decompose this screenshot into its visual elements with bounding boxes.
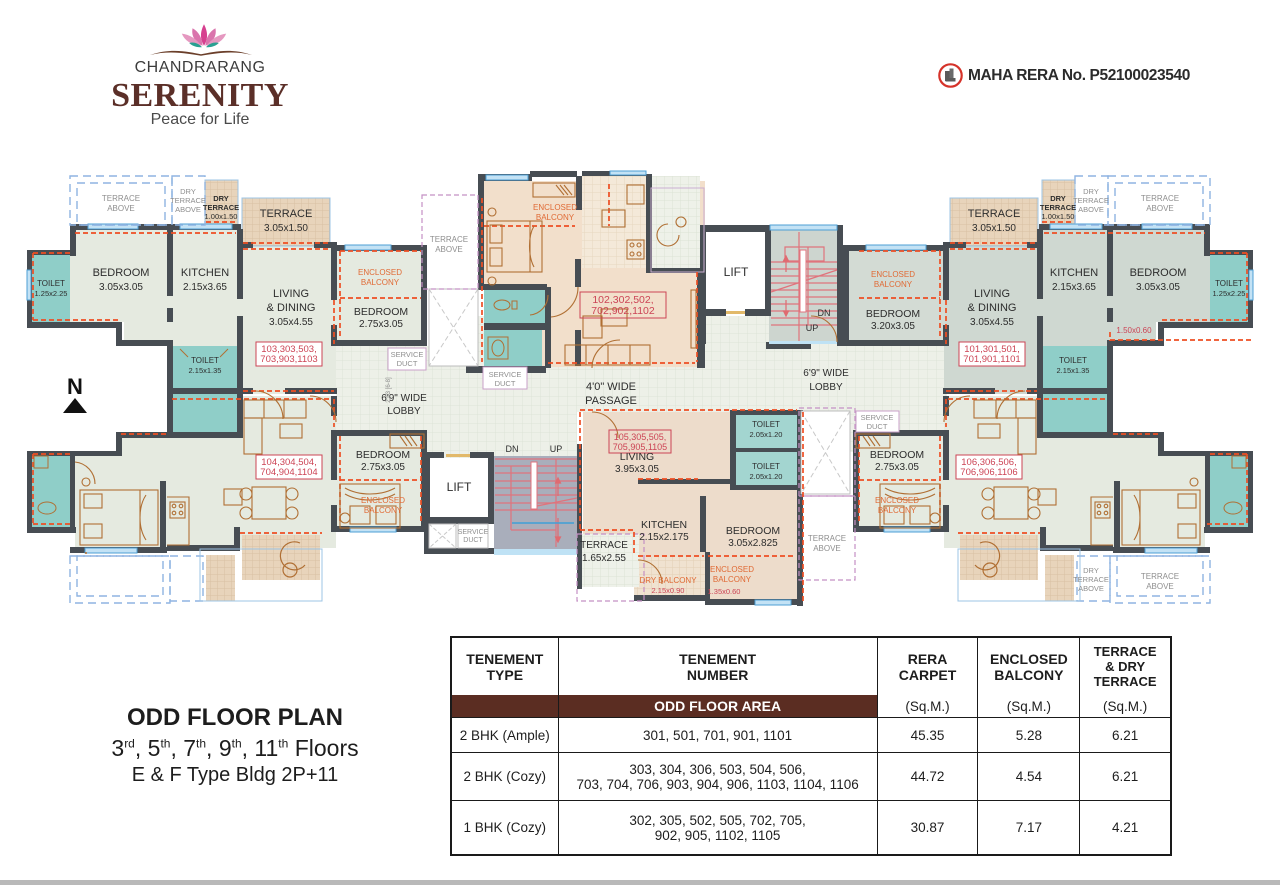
svg-text:LOBBY: LOBBY — [387, 406, 421, 417]
svg-text:TERRACE: TERRACE — [102, 194, 140, 203]
svg-text:701,901,1101: 701,901,1101 — [963, 354, 1020, 365]
svg-text:BEDROOM: BEDROOM — [866, 308, 920, 320]
svg-text:6'9" WIDE: 6'9" WIDE — [803, 368, 849, 379]
svg-text:2.15x1.35: 2.15x1.35 — [1057, 366, 1090, 375]
svg-text:TERRACE: TERRACE — [580, 540, 628, 551]
svg-text:KITCHEN: KITCHEN — [641, 519, 687, 531]
svg-text:DRY: DRY — [1083, 187, 1099, 196]
svg-text:& DINING: & DINING — [968, 302, 1017, 314]
svg-text:BALCONY: BALCONY — [874, 280, 913, 289]
svg-text:2.75x3.05: 2.75x3.05 — [361, 462, 405, 473]
svg-text:TOILET: TOILET — [752, 420, 780, 429]
svg-text:LIFT: LIFT — [447, 480, 472, 494]
svg-text:TERRACE: TERRACE — [430, 235, 468, 244]
svg-text:BEDROOM: BEDROOM — [1130, 267, 1187, 279]
svg-text:UP: UP — [550, 444, 563, 454]
svg-text:TOILET: TOILET — [1059, 356, 1087, 365]
svg-text:BALCONY: BALCONY — [878, 506, 917, 515]
svg-text:DN: DN — [818, 308, 831, 318]
svg-text:2.15x1.35: 2.15x1.35 — [189, 366, 222, 375]
svg-text:3.05x1.50: 3.05x1.50 — [972, 223, 1016, 234]
svg-text:3.05x2.825: 3.05x2.825 — [728, 538, 778, 549]
svg-text:TOILET: TOILET — [752, 462, 780, 471]
svg-text:TERRACE: TERRACE — [1073, 575, 1109, 584]
svg-text:DUCT: DUCT — [463, 537, 483, 544]
svg-text:TOILET: TOILET — [191, 356, 219, 365]
svg-text:TERRACE: TERRACE — [968, 208, 1021, 220]
svg-text:2.15x3.65: 2.15x3.65 — [1052, 282, 1096, 293]
svg-text:ENCLOSED: ENCLOSED — [361, 496, 405, 505]
svg-text:DUCT: DUCT — [867, 422, 888, 431]
svg-text:703,903,1103: 703,903,1103 — [260, 354, 317, 365]
svg-text:105,305,505,: 105,305,505, — [614, 432, 667, 442]
svg-text:2.03 [6-8]: 2.03 [6-8] — [386, 377, 392, 403]
svg-text:SERVICE: SERVICE — [391, 350, 424, 359]
svg-text:TOILET: TOILET — [37, 279, 65, 288]
svg-text:BALCONY: BALCONY — [536, 213, 575, 222]
svg-text:1.25x2.25: 1.25x2.25 — [35, 289, 68, 298]
svg-text:1.00x1.50: 1.00x1.50 — [1042, 212, 1075, 221]
svg-text:BEDROOM: BEDROOM — [93, 267, 150, 279]
svg-text:TERRACE: TERRACE — [808, 534, 846, 543]
svg-text:1.35x0.60: 1.35x0.60 — [708, 587, 741, 596]
svg-text:2.15x3.65: 2.15x3.65 — [183, 282, 227, 293]
svg-text:SERVICE: SERVICE — [861, 413, 894, 422]
svg-text:BALCONY: BALCONY — [364, 506, 403, 515]
svg-text:ENCLOSED: ENCLOSED — [358, 268, 402, 277]
svg-text:704,904,1104: 704,904,1104 — [260, 467, 317, 478]
svg-text:2.75x3.05: 2.75x3.05 — [359, 319, 403, 330]
svg-text:ABOVE: ABOVE — [175, 205, 201, 214]
svg-text:1.00x1.50: 1.00x1.50 — [205, 212, 238, 221]
svg-text:3.20x3.05: 3.20x3.05 — [871, 321, 915, 332]
svg-text:N: N — [67, 374, 83, 399]
svg-text:2.15x2.175: 2.15x2.175 — [639, 532, 689, 543]
svg-text:TOILET: TOILET — [1215, 279, 1243, 288]
svg-text:DRY: DRY — [180, 187, 196, 196]
svg-text:DUCT: DUCT — [495, 379, 516, 388]
svg-text:DN: DN — [506, 444, 519, 454]
svg-text:3.95x3.05: 3.95x3.05 — [615, 464, 659, 475]
svg-text:DRY: DRY — [1083, 566, 1099, 575]
svg-text:KITCHEN: KITCHEN — [181, 267, 229, 279]
svg-text:TERRACE: TERRACE — [1141, 194, 1179, 203]
svg-text:3.05x3.05: 3.05x3.05 — [1136, 282, 1180, 293]
svg-text:DRY BALCONY: DRY BALCONY — [639, 576, 697, 585]
svg-text:LIVING: LIVING — [273, 288, 309, 300]
svg-text:ENCLOSED: ENCLOSED — [875, 496, 919, 505]
svg-text:2.05x1.20: 2.05x1.20 — [750, 472, 783, 481]
svg-text:ABOVE: ABOVE — [1146, 204, 1174, 213]
svg-text:1.25x2.25: 1.25x2.25 — [1213, 289, 1246, 298]
svg-text:SERVICE: SERVICE — [489, 370, 522, 379]
svg-text:PASSAGE: PASSAGE — [585, 395, 637, 407]
svg-text:ABOVE: ABOVE — [107, 204, 135, 213]
svg-text:706,906,1106: 706,906,1106 — [960, 467, 1017, 478]
svg-text:LIVING: LIVING — [974, 288, 1010, 300]
svg-text:DUCT: DUCT — [397, 359, 418, 368]
svg-text:2.75x3.05: 2.75x3.05 — [875, 462, 919, 473]
svg-text:702,902,1102: 702,902,1102 — [591, 305, 655, 317]
svg-text:ABOVE: ABOVE — [813, 544, 841, 553]
svg-text:3.05x3.05: 3.05x3.05 — [99, 282, 143, 293]
svg-text:ABOVE: ABOVE — [1146, 582, 1174, 591]
svg-text:TERRACE: TERRACE — [1040, 203, 1076, 212]
svg-text:ENCLOSED: ENCLOSED — [710, 565, 754, 574]
svg-text:LIVING: LIVING — [620, 451, 654, 463]
svg-text:4'0" WIDE: 4'0" WIDE — [586, 381, 636, 393]
svg-text:3.05x1.50: 3.05x1.50 — [264, 223, 308, 234]
svg-text:2.05x1.20: 2.05x1.20 — [750, 430, 783, 439]
svg-text:ABOVE: ABOVE — [1078, 205, 1104, 214]
svg-text:BEDROOM: BEDROOM — [354, 306, 408, 318]
svg-text:TERRACE: TERRACE — [1141, 572, 1179, 581]
svg-text:TERRACE: TERRACE — [203, 203, 239, 212]
svg-text:TERRACE: TERRACE — [1073, 196, 1109, 205]
svg-text:3.05x4.55: 3.05x4.55 — [269, 317, 313, 328]
svg-text:LIFT: LIFT — [724, 265, 749, 279]
svg-text:& DINING: & DINING — [267, 302, 316, 314]
svg-text:TERRACE: TERRACE — [170, 196, 206, 205]
svg-text:1.65x2.55: 1.65x2.55 — [582, 553, 626, 564]
svg-text:BALCONY: BALCONY — [713, 575, 752, 584]
svg-text:3.05x4.55: 3.05x4.55 — [970, 317, 1014, 328]
svg-text:1.50x0.60: 1.50x0.60 — [1116, 326, 1152, 335]
svg-text:SERVICE: SERVICE — [458, 529, 489, 536]
svg-text:ABOVE: ABOVE — [1078, 584, 1104, 593]
svg-text:BEDROOM: BEDROOM — [870, 449, 924, 461]
svg-text:TERRACE: TERRACE — [260, 208, 313, 220]
svg-text:BEDROOM: BEDROOM — [356, 449, 410, 461]
svg-text:LOBBY: LOBBY — [809, 382, 843, 393]
svg-text:KITCHEN: KITCHEN — [1050, 267, 1098, 279]
svg-text:BEDROOM: BEDROOM — [726, 525, 780, 537]
svg-text:2.15x0.90: 2.15x0.90 — [652, 586, 685, 595]
svg-text:BALCONY: BALCONY — [361, 278, 400, 287]
svg-text:DRY: DRY — [213, 194, 229, 203]
svg-text:ABOVE: ABOVE — [435, 245, 463, 254]
svg-text:ENCLOSED: ENCLOSED — [533, 203, 577, 212]
svg-text:UP: UP — [806, 323, 819, 333]
svg-text:DRY: DRY — [1050, 194, 1066, 203]
svg-text:ENCLOSED: ENCLOSED — [871, 270, 915, 279]
